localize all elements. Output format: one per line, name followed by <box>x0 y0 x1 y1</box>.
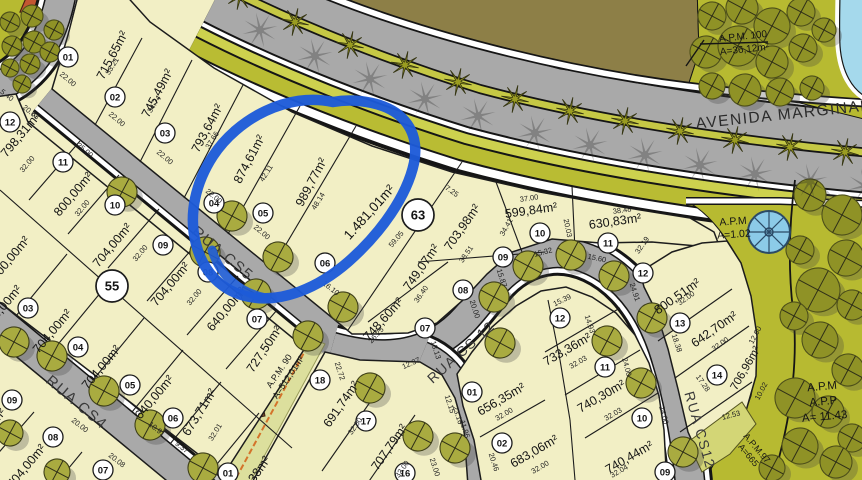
fountain-icon <box>748 211 790 253</box>
lot-number-label: 13 <box>675 318 686 329</box>
lot-number-label: 09 <box>498 252 509 263</box>
lot-number-label: 07 <box>252 314 263 325</box>
annotation-line: A.P.P <box>809 395 838 409</box>
lot-number-label: 10 <box>637 413 648 424</box>
lot-number-label: 01 <box>63 52 74 63</box>
lot-number-label: 09 <box>7 395 18 406</box>
lot-number-label: 06 <box>168 413 179 424</box>
lot-number-label: 12 <box>638 268 649 279</box>
map-canvas: AVENIDA MARGINALRUA CS5RUA CS4RUA CS 12R… <box>0 0 862 480</box>
lot-number-label: 03 <box>23 303 34 314</box>
lot-number-label: 02 <box>497 438 508 449</box>
lot-number-label: 04 <box>73 342 84 353</box>
lot-number-label: 10 <box>535 228 546 239</box>
lot-number-label: 18 <box>315 375 326 386</box>
lot-number-label: 08 <box>48 432 59 443</box>
annotation-line: A.P.M <box>719 215 747 229</box>
lot-number-label: 01 <box>467 387 478 398</box>
lot-number-label: 05 <box>258 208 269 219</box>
lot-number-label: 10 <box>110 200 121 211</box>
lot-number-label: 05 <box>125 380 136 391</box>
lot-number-label: 09 <box>158 240 169 251</box>
lot-number-label: 06 <box>320 258 331 269</box>
lot-number-label: 02 <box>110 92 121 103</box>
annotation-line: A=1.02 <box>717 227 751 241</box>
block-number-label: 63 <box>411 208 425 223</box>
lot-number-label: 08 <box>458 285 469 296</box>
lot-number-label: 03 <box>160 128 171 139</box>
lot-number-label: 11 <box>600 362 611 373</box>
cadastral-map: AVENIDA MARGINALRUA CS5RUA CS4RUA CS 12R… <box>0 0 862 480</box>
lot-number-label: 09 <box>660 467 671 478</box>
lot-number-label: 07 <box>98 465 109 476</box>
block-number-label: 55 <box>105 279 119 294</box>
lot-number-label: 01 <box>223 468 234 479</box>
annotation-ap-fountain: A.P.MA=1.02 <box>716 215 751 242</box>
lot-number-label: 12 <box>5 117 16 128</box>
lot-number-label: 11 <box>58 157 69 168</box>
lot-number-label: 14 <box>712 370 723 381</box>
lot-number-label: 11 <box>603 238 614 249</box>
lot-number-label: 12 <box>555 313 566 324</box>
lot-number-label: 07 <box>420 323 431 334</box>
